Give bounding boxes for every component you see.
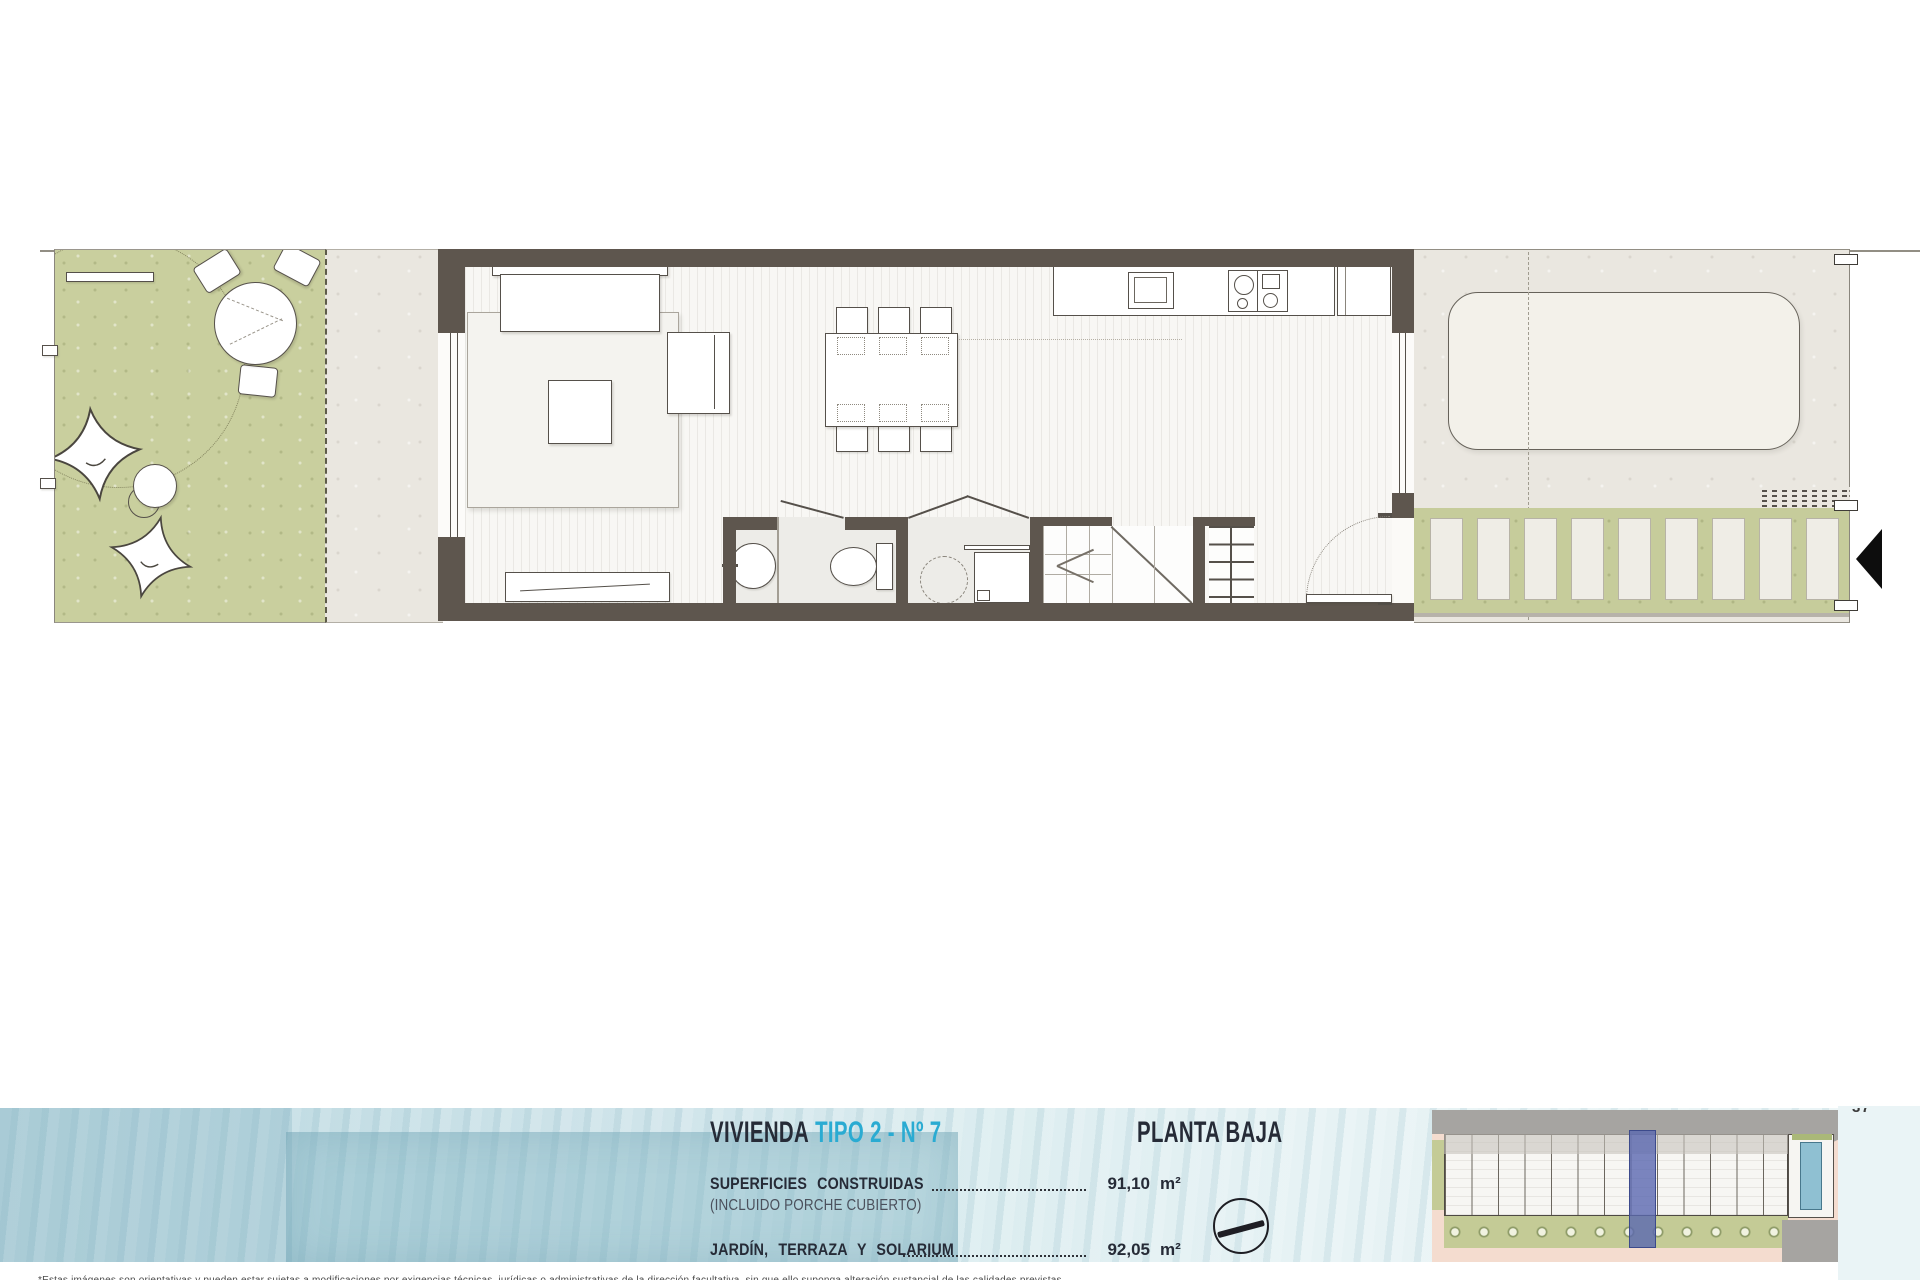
walkway-plank — [1571, 518, 1604, 600]
interior-wall — [1030, 517, 1112, 526]
burner — [1237, 298, 1248, 309]
burner — [1263, 293, 1278, 308]
site-hedge — [1792, 1134, 1832, 1140]
garden-table — [214, 282, 297, 365]
interior-wall — [1193, 517, 1255, 526]
boundary-door-mark — [1834, 600, 1858, 611]
washer-valve — [977, 590, 990, 601]
toilet-tank — [876, 543, 893, 590]
cooktop-divider — [1257, 271, 1258, 311]
wall-right-upper — [1392, 249, 1415, 333]
terrace — [1414, 249, 1850, 623]
walkway-plank — [1618, 518, 1651, 600]
shelving-unit — [1209, 526, 1254, 603]
interior-wall — [1193, 517, 1205, 604]
armchair — [667, 332, 730, 414]
sofa — [500, 274, 660, 332]
disclaimer: *Estas imágenes son orientativas y puede… — [38, 1270, 1078, 1280]
compass-needle — [1217, 1220, 1265, 1238]
dotted-leader — [903, 1255, 1086, 1257]
dining-chair — [878, 424, 910, 452]
area-row-sublabel: (INCLUIDO PORCHE CUBIERTO) — [710, 1197, 962, 1215]
site-gray-yard — [1782, 1220, 1838, 1262]
window-left — [438, 333, 465, 537]
seat-dotted — [879, 337, 907, 355]
area-unit: m² — [1160, 1174, 1181, 1194]
area-value: 92,05 — [1094, 1240, 1150, 1260]
wall-left-lower — [438, 537, 465, 621]
interior-wall — [845, 517, 902, 530]
entrance-arrow-icon — [1856, 529, 1882, 589]
plan-area — [0, 0, 1920, 900]
interior-wall — [896, 517, 908, 604]
window-right — [1392, 333, 1415, 493]
interior-wall — [1030, 517, 1043, 604]
window-glass-lines — [1399, 333, 1406, 493]
dining-chair — [920, 424, 952, 452]
boundary-door-mark — [1834, 254, 1858, 265]
title-project: VIVIENDA — [710, 1116, 809, 1149]
garden-chair — [272, 249, 321, 288]
wall-right-mid — [1392, 493, 1415, 518]
kitchen-counter — [1053, 263, 1335, 316]
floor-plan-sheet: VIVIENDA TIPO 2 - Nº 7 PLANTA BAJA SUPER… — [0, 0, 1920, 1280]
site-garden-strip — [1444, 1216, 1788, 1248]
burner — [1234, 275, 1254, 295]
wall-left-upper — [438, 249, 465, 333]
stairs — [1043, 526, 1193, 603]
walkway-plank — [1712, 518, 1745, 600]
page-number: 37 — [1852, 1108, 1886, 1116]
water-deep-left — [0, 1108, 292, 1262]
area-row-label: JARDÍN, TERRAZA Y SOLARIUM — [710, 1240, 1000, 1260]
site-plan-thumbnail — [1432, 1110, 1838, 1262]
stair-mid-line — [1154, 526, 1155, 603]
cooktop — [1228, 270, 1288, 312]
gate-mark — [40, 478, 56, 489]
walkway-plank — [1524, 518, 1557, 600]
walkway-plank — [1477, 518, 1510, 600]
parking-car-outline — [1448, 292, 1800, 450]
site-terraces-row — [1444, 1134, 1788, 1154]
interior-wall — [723, 517, 736, 604]
umbrella-dashed-line — [230, 318, 283, 344]
gate-mark — [42, 345, 58, 356]
side-table — [133, 464, 177, 508]
boundary-tick-right — [1849, 250, 1920, 252]
dining-chair — [836, 307, 868, 335]
seat-dotted — [921, 404, 949, 422]
floor-label: PLANTA BAJA — [1137, 1116, 1351, 1150]
seat-dotted — [837, 404, 865, 422]
garden — [54, 249, 326, 623]
toilet-bowl — [830, 547, 877, 586]
bath-partition-line — [777, 517, 779, 604]
area-row-label: SUPERFICIES CONSTRUIDAS — [710, 1174, 964, 1194]
tv-diagonal-line — [520, 584, 650, 592]
sink-inner — [1134, 277, 1167, 303]
seat-dotted — [837, 337, 865, 355]
site-highlight-unit — [1629, 1130, 1656, 1248]
coffee-table — [548, 380, 612, 444]
wall-bottom — [441, 603, 1415, 621]
sheet-title: VIVIENDA TIPO 2 - Nº 7 — [710, 1116, 1050, 1150]
compass-icon — [1213, 1198, 1269, 1254]
seat-dotted — [921, 337, 949, 355]
dining-chair — [878, 307, 910, 335]
walkway-plank — [1806, 518, 1839, 600]
kitchen-sink — [1128, 272, 1174, 309]
title-unit: TIPO 2 - Nº 7 — [815, 1116, 941, 1149]
boundary-door-mark — [1834, 500, 1858, 511]
site-green-left — [1432, 1140, 1444, 1210]
armchair-back-line — [714, 335, 715, 409]
laundry-counter — [964, 545, 1030, 550]
garden-chair — [238, 364, 279, 398]
fridge — [1337, 263, 1391, 316]
fridge-door-line — [1345, 264, 1346, 315]
washer-drum-dashed — [920, 556, 968, 604]
boundary-tick-left — [40, 250, 55, 252]
shelf-center-line — [1230, 526, 1232, 603]
stair-cut-diagonal — [1111, 526, 1193, 604]
dining-table — [825, 333, 958, 427]
porch — [325, 249, 443, 623]
walkway-plank — [1430, 518, 1463, 600]
area-value: 91,10 — [1094, 1174, 1150, 1194]
site-pool — [1800, 1142, 1822, 1210]
walkway — [1414, 508, 1849, 613]
seat-dotted — [879, 404, 907, 422]
planter — [66, 272, 154, 282]
dining-chair — [920, 307, 952, 335]
walkway-plank — [1665, 518, 1698, 600]
window-glass-lines — [450, 333, 458, 537]
tv-console — [505, 572, 670, 602]
wall-top — [441, 249, 1414, 267]
umbrella-dashed-line — [227, 298, 283, 321]
walkway-edge-line — [1414, 613, 1849, 617]
entrance-door-leaf — [1306, 594, 1392, 603]
pouf-icon — [98, 504, 205, 611]
area-unit: m² — [1160, 1240, 1181, 1260]
side-panel — [1838, 1106, 1920, 1280]
dotted-leader — [932, 1189, 1086, 1191]
dining-chair — [836, 424, 868, 452]
burner-square — [1262, 274, 1280, 289]
entrance-doorway — [1392, 518, 1415, 603]
walkway-plank — [1759, 518, 1792, 600]
